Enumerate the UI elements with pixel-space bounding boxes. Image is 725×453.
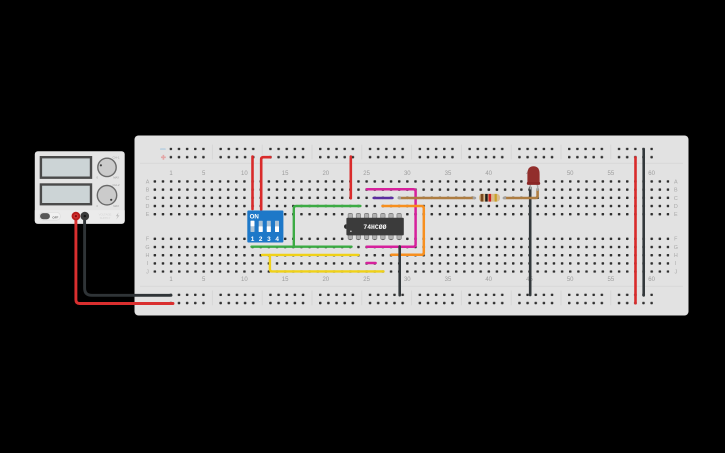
svg-text:30: 30 [404,277,411,283]
svg-text:D: D [146,204,150,210]
svg-text:ON: ON [250,213,260,220]
svg-text:MAX: MAX [113,176,119,180]
svg-text:10: 10 [241,277,248,283]
svg-text:H: H [146,253,150,259]
svg-text:G: G [674,245,678,251]
svg-text:35: 35 [445,277,452,283]
svg-text:OFF: OFF [52,215,58,219]
svg-text:C: C [146,196,150,202]
svg-text:I: I [147,261,149,267]
svg-text:4: 4 [275,236,279,243]
svg-text:CH-1: CH-1 [112,156,119,160]
svg-text:50: 50 [567,171,574,177]
svg-text:SUPPLY: SUPPLY [100,216,111,220]
svg-text:55: 55 [608,171,615,177]
svg-text:40: 40 [485,277,492,283]
svg-text:15: 15 [282,277,289,283]
svg-text:H: H [674,253,678,259]
svg-text:I: I [675,261,677,267]
svg-text:25: 25 [363,277,370,283]
svg-text:35: 35 [445,171,452,177]
svg-text:20: 20 [322,171,329,177]
svg-text:10: 10 [241,171,248,177]
svg-text:2: 2 [259,236,263,243]
svg-text:50: 50 [567,277,574,283]
svg-text:D: D [674,204,678,210]
svg-text:E: E [674,212,678,218]
svg-text:30: 30 [404,171,411,177]
svg-text:60: 60 [648,277,655,283]
svg-text:G: G [145,245,149,251]
svg-text:25: 25 [363,171,370,177]
svg-text:B: B [674,188,678,194]
svg-text:15: 15 [282,171,289,177]
svg-text:MAX: MAX [113,204,119,208]
svg-text:3: 3 [267,236,271,243]
svg-text:A: A [146,179,150,185]
svg-text:20: 20 [322,277,329,283]
svg-text:55: 55 [608,277,615,283]
svg-text:1: 1 [251,236,255,243]
svg-text:CH-2: CH-2 [112,183,119,187]
svg-text:J: J [674,269,677,275]
svg-text:C: C [674,196,678,202]
svg-text:40: 40 [485,171,492,177]
svg-text:74HCØØ: 74HCØØ [363,223,386,231]
svg-text:J: J [146,269,149,275]
svg-text:B: B [146,188,150,194]
svg-text:E: E [146,212,150,218]
svg-text:A: A [674,179,678,185]
svg-text:60: 60 [648,171,655,177]
